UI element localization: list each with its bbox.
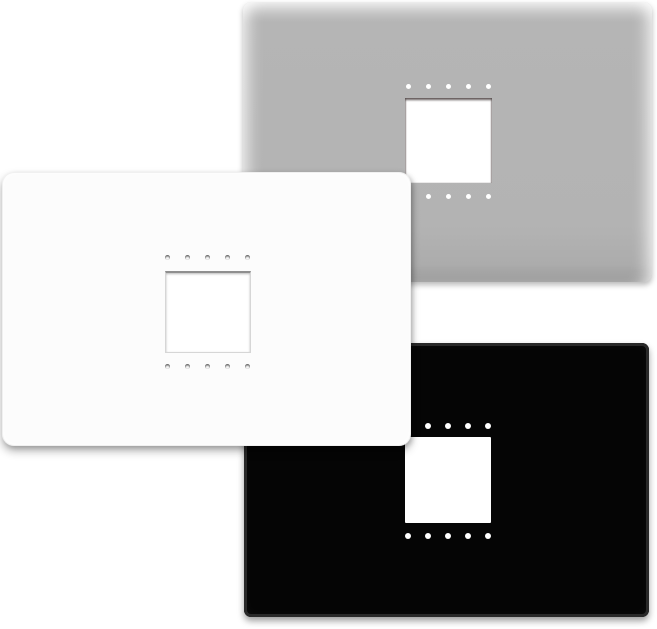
- mounting-hole: [405, 533, 411, 539]
- mounting-hole: [185, 255, 190, 260]
- mounting-hole: [245, 255, 250, 260]
- mounting-hole: [446, 84, 451, 89]
- mounting-hole: [486, 194, 491, 199]
- mounting-hole: [165, 255, 170, 260]
- wall-plate-white: [2, 172, 411, 446]
- module-cutout: [405, 98, 492, 183]
- mounting-hole: [425, 423, 431, 429]
- mounting-hole: [445, 533, 451, 539]
- mounting-hole: [485, 533, 491, 539]
- mounting-hole: [446, 194, 451, 199]
- mounting-hole: [165, 364, 170, 369]
- mounting-hole: [225, 255, 230, 260]
- mounting-hole: [425, 533, 431, 539]
- mounting-hole: [406, 84, 411, 89]
- mounting-hole: [485, 423, 491, 429]
- module-cutout: [405, 437, 491, 523]
- mounting-hole: [185, 364, 190, 369]
- mounting-hole: [426, 84, 431, 89]
- mounting-hole: [465, 423, 471, 429]
- mounting-hole: [205, 255, 210, 260]
- mounting-hole: [466, 84, 471, 89]
- mounting-hole: [426, 194, 431, 199]
- mounting-hole: [486, 84, 491, 89]
- mounting-hole: [445, 423, 451, 429]
- module-cutout: [165, 271, 251, 353]
- mounting-hole: [225, 364, 230, 369]
- product-image-canvas: [0, 0, 657, 629]
- mounting-hole: [466, 194, 471, 199]
- mounting-hole: [465, 533, 471, 539]
- mounting-hole: [245, 364, 250, 369]
- mounting-hole: [205, 364, 210, 369]
